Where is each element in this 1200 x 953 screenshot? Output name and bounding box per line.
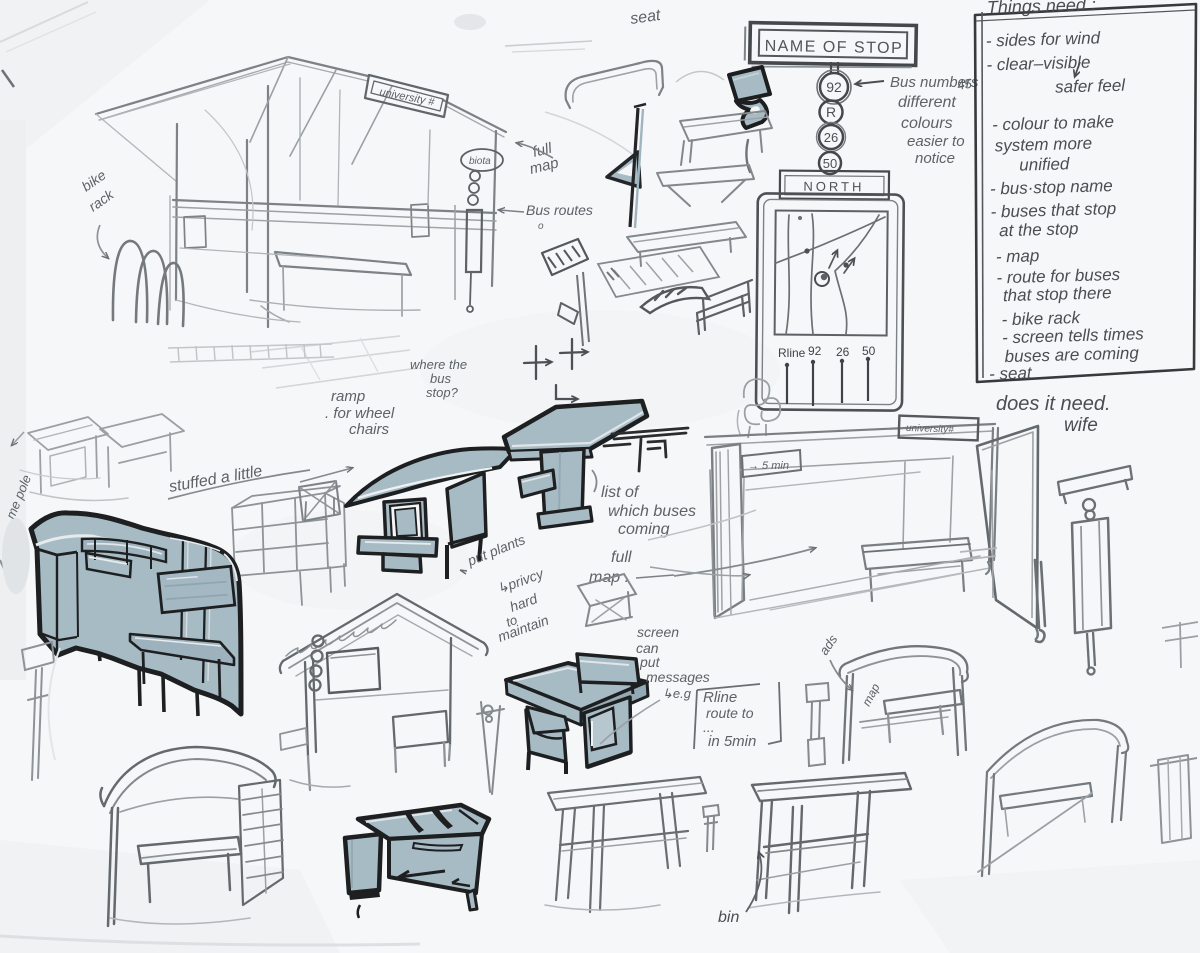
svg-text:screen: screen: [637, 624, 679, 640]
svg-text:26: 26: [824, 130, 838, 145]
svg-text:which buses: which buses: [608, 503, 696, 520]
svg-text:put: put: [639, 654, 661, 670]
svg-text:- colour to make: - colour to make: [992, 112, 1114, 134]
svg-text:biota: biota: [469, 156, 491, 167]
svg-text:NAME OF STOP: NAME OF STOP: [765, 38, 904, 57]
svg-text:university#: university#: [906, 423, 955, 436]
svg-text:Bus routes: Bus routes: [526, 202, 593, 218]
svg-text:safer feel: safer feel: [1055, 76, 1127, 97]
svg-text:Things need :: Things need :: [987, 0, 1097, 18]
svg-text:. for wheel: . for wheel: [325, 405, 395, 422]
svg-text:messages: messages: [646, 669, 710, 685]
svg-text:50: 50: [862, 344, 876, 358]
svg-text:R: R: [826, 104, 836, 120]
svg-text:system more: system more: [994, 134, 1092, 156]
svg-text:92: 92: [808, 344, 822, 358]
svg-text:26: 26: [836, 345, 850, 359]
svg-text:list of: list of: [601, 484, 640, 501]
svg-text:at the stop: at the stop: [999, 219, 1079, 240]
svg-text:92: 92: [826, 79, 842, 95]
svg-text:- buses that stop: - buses that stop: [990, 199, 1116, 222]
svg-text:chairs: chairs: [349, 421, 390, 438]
svg-text:Rline: Rline: [703, 689, 737, 706]
svg-text:- bus·stop name: - bus·stop name: [990, 176, 1113, 198]
svg-text:coming: coming: [618, 521, 670, 538]
svg-text:- seat: - seat: [989, 363, 1033, 383]
svg-text:different: different: [898, 94, 956, 111]
svg-text:stop?: stop?: [426, 385, 459, 400]
svg-text:- map: - map: [996, 246, 1040, 266]
svg-text:→ 5 min: → 5 min: [748, 460, 789, 472]
svg-text:NORTH: NORTH: [803, 179, 864, 195]
svg-text:where the: where the: [410, 357, 467, 372]
svg-text:bin: bin: [718, 909, 739, 926]
svg-text:bus: bus: [430, 371, 451, 386]
svg-text:- sides for wind: - sides for wind: [986, 28, 1101, 50]
svg-text:that stop there: that stop there: [1003, 283, 1112, 305]
svg-text:o: o: [538, 221, 544, 232]
svg-text:↳e.g: ↳e.g: [662, 686, 692, 701]
svg-text:ramp: ramp: [331, 388, 365, 405]
svg-text:full: full: [611, 549, 632, 566]
svg-text:does it need.: does it need.: [996, 393, 1111, 415]
svg-text:notice: notice: [915, 150, 955, 167]
svg-text:in 5min: in 5min: [708, 733, 756, 750]
svg-text:50: 50: [823, 156, 837, 171]
svg-text:- clear–visible: - clear–visible: [986, 53, 1090, 75]
svg-text:Rline: Rline: [778, 346, 806, 360]
svg-text:unified: unified: [1019, 154, 1070, 174]
svg-text:wife: wife: [1064, 415, 1098, 436]
svg-text:colours: colours: [901, 115, 953, 132]
svg-text:easier to: easier to: [907, 133, 965, 150]
